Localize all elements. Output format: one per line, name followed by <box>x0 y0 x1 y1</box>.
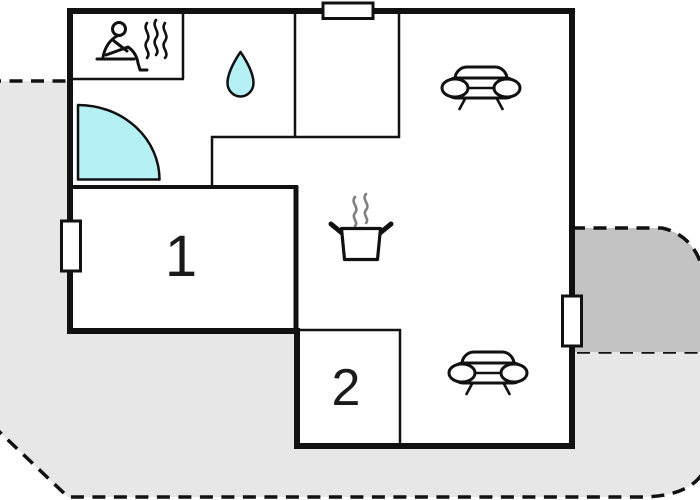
window-top <box>323 3 373 19</box>
window-left <box>62 221 81 271</box>
room-label-1: 1 <box>165 228 197 286</box>
sauna-person-head <box>113 23 126 36</box>
floorplan-svg <box>0 0 700 500</box>
terrace-side <box>572 228 700 352</box>
window-right <box>563 296 582 346</box>
pot-body <box>342 229 381 260</box>
room-label-2: 2 <box>332 362 361 414</box>
floorplan: 1 2 <box>0 0 700 500</box>
